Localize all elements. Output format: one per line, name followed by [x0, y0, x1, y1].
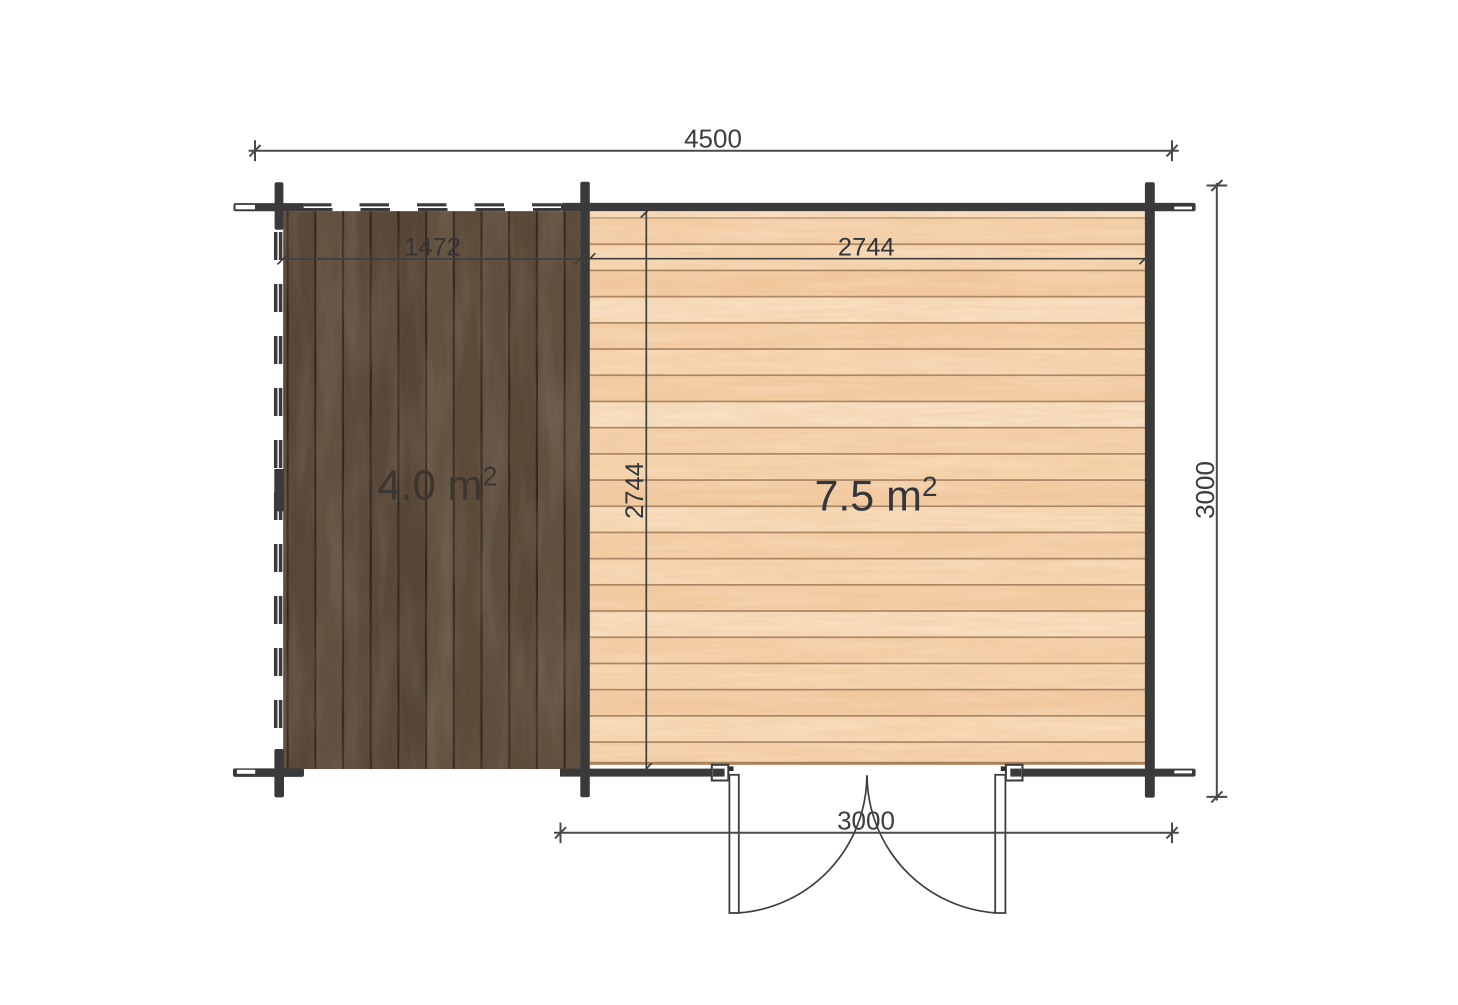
svg-text:2744: 2744: [838, 233, 895, 261]
svg-text:1472: 1472: [404, 233, 461, 261]
svg-text:4500: 4500: [684, 123, 742, 153]
svg-text:3000: 3000: [837, 805, 895, 835]
svg-text:4.0 m2: 4.0 m2: [377, 462, 497, 509]
svg-text:2744: 2744: [621, 462, 649, 519]
svg-text:7.5 m2: 7.5 m2: [814, 471, 937, 521]
svg-text:3000: 3000: [1190, 461, 1220, 519]
